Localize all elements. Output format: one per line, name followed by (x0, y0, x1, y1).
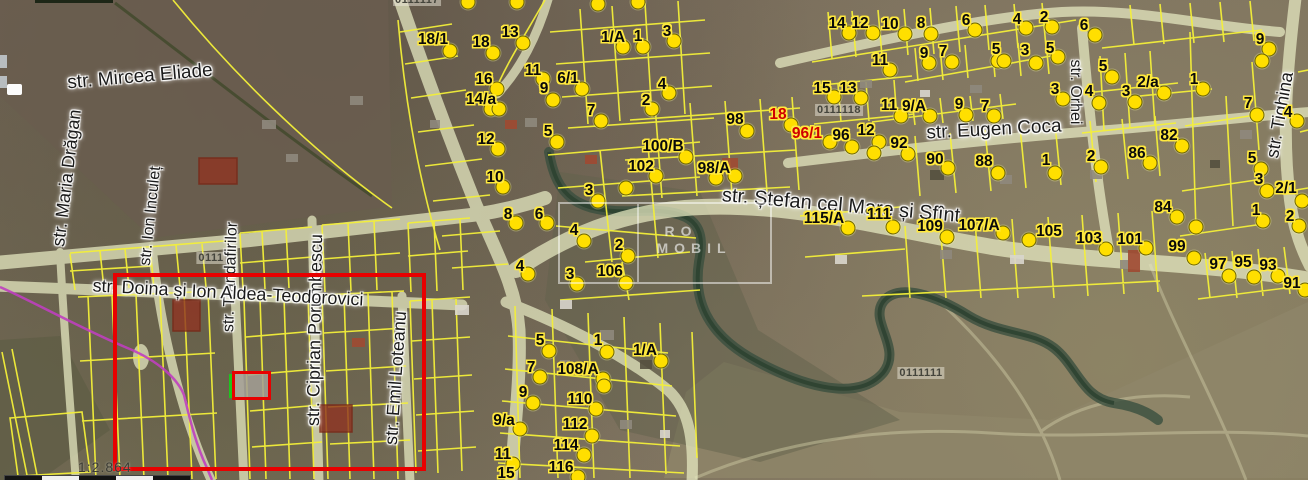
parcel-number: 6/1 (557, 70, 579, 88)
map-canvas[interactable]: str. Mircea Eliadestr. Maria Drăganstr. … (0, 0, 1308, 480)
parcel-number: 10 (881, 16, 898, 34)
parcel-number: 2 (642, 92, 651, 110)
scale-bar-segment (42, 476, 79, 480)
parcel-dot (619, 181, 634, 196)
parcel-number: 5 (544, 123, 553, 141)
parcel-number: 11 (872, 52, 888, 70)
parcel-number: 84 (1154, 199, 1171, 217)
parcel-number: 3 (585, 182, 594, 200)
parcel-number: 5 (992, 41, 1001, 59)
parcel-number: 1 (1252, 202, 1261, 220)
parcel-dot (1094, 160, 1109, 175)
cadastral-code: 0111111 (897, 367, 944, 379)
parcel-number: 4 (1284, 104, 1293, 122)
parcel-number: 4 (658, 76, 667, 94)
parcel-number: 82 (1160, 127, 1177, 145)
parcel-number: 6 (535, 206, 544, 224)
parcel-number: 9 (1256, 31, 1265, 49)
parcel-number: 9 (920, 45, 929, 63)
parcel-number: 92 (890, 135, 907, 153)
parcel-number: 15 (497, 465, 514, 480)
cadastral-code: 0111 (196, 252, 225, 264)
street-label: str. Maria Drăgan (48, 108, 86, 248)
parcel-dot (898, 27, 913, 42)
parcel-number: 9 (955, 96, 964, 114)
parcel-number: 5 (1099, 58, 1108, 76)
parcel-number: 2 (1087, 148, 1096, 166)
parcel-number: 111 (867, 206, 891, 224)
parcel-number: 8 (504, 206, 513, 224)
selected-parcel-green-edge (229, 374, 232, 398)
parcel-number: 7 (1244, 95, 1253, 113)
parcel-dot (1088, 28, 1103, 43)
parcel-number: 88 (975, 153, 992, 171)
parcel-number: 114 (553, 437, 578, 455)
parcel-number: 1 (1042, 152, 1051, 170)
parcel-number: 9/a (493, 412, 515, 430)
parcel-dot (461, 0, 476, 10)
parcel-number: 101 (1117, 231, 1143, 249)
parcel-number: 10 (486, 169, 503, 187)
watermark-text: RO (665, 223, 698, 239)
parcel-dot (597, 379, 612, 394)
parcel-dot (1189, 220, 1204, 235)
parcel-dot (1022, 233, 1037, 248)
parcel-number: 5 (536, 332, 545, 350)
parcel-number: 86 (1128, 145, 1145, 163)
parcel-number: 12 (477, 131, 494, 149)
parcel-dot (1029, 56, 1044, 71)
parcel-number: 3 (1051, 81, 1060, 99)
parcel-dot (1255, 54, 1270, 69)
parcel-number: 2/1 (1275, 180, 1297, 198)
parcel-number: 18 (472, 34, 489, 52)
parcel-number: 116 (548, 459, 573, 477)
parcel-number: 93 (1259, 257, 1276, 275)
parcel-number: 105 (1036, 223, 1062, 241)
parcel-number: 2/a (1137, 74, 1159, 92)
parcel-number: 18/1 (418, 31, 448, 49)
parcel-number: 6 (1080, 17, 1089, 35)
street-label: str. Orhei (1066, 60, 1084, 125)
parcel-number: 102 (628, 158, 654, 176)
parcel-number: 96 (832, 127, 849, 145)
map-scale-label: 1:2.864 (78, 459, 132, 475)
parcel-number: 16 (475, 71, 492, 89)
map-overlay-labels: str. Mircea Eliadestr. Maria Drăganstr. … (0, 0, 1308, 480)
cadastral-code: 0111118 (815, 104, 863, 116)
parcel-number: 3 (663, 23, 672, 41)
parcel-number: 13 (839, 80, 856, 98)
parcel-number: 97 (1209, 256, 1226, 274)
scale-bar-segment (5, 476, 42, 480)
street-label: str. Ion Inculeț (137, 166, 165, 267)
parcel-dot (1170, 210, 1185, 225)
parcel-number: 100/B (642, 138, 683, 156)
parcel-number: 1 (1190, 71, 1199, 89)
parcel-number: 4 (516, 258, 525, 276)
parcel-number: 14 (828, 15, 845, 33)
parcel-dot (1187, 251, 1202, 266)
parcel-number: 12 (857, 122, 874, 140)
parcel-number: 7 (939, 43, 948, 61)
parcel-number: 7 (587, 102, 596, 120)
parcel-number: 9/A (902, 98, 926, 116)
cadastral-code: 0111117 (393, 0, 441, 6)
parcel-number: 11 (495, 446, 511, 464)
parcel-number: 109 (917, 218, 943, 236)
scale-bar-segment (116, 476, 153, 480)
parcel-number: 12 (851, 15, 868, 33)
watermark-divider (637, 204, 639, 282)
parcel-number: 108/A (557, 361, 598, 379)
parcel-number: 13 (501, 24, 518, 42)
parcel-number: 115/A (804, 210, 845, 228)
parcel-dot (591, 0, 606, 12)
parcel-number: 18 (769, 106, 786, 124)
watermark-text: MOBIL (656, 240, 731, 256)
parcel-dot (924, 27, 939, 42)
parcel-number: 7 (981, 98, 990, 116)
parcel-dot (867, 146, 882, 161)
parcel-number: 91 (1283, 275, 1300, 293)
parcel-number: 99 (1168, 238, 1185, 256)
scale-bar-segment (79, 476, 116, 480)
parcel-dot (631, 0, 646, 10)
parcel-number: 4 (1085, 83, 1094, 101)
parcel-number: 98 (726, 111, 743, 129)
parcel-dot (577, 448, 592, 463)
parcel-number: 98/A (698, 160, 731, 178)
street-label: str. Mircea Eliade (66, 60, 213, 95)
parcel-number: 4 (1013, 11, 1022, 29)
parcel-number: 6 (962, 12, 971, 30)
parcel-number: 1/A (633, 342, 657, 360)
parcel-number: 107/A (958, 217, 999, 235)
parcel-number: 7 (527, 359, 536, 377)
map-scale-bar (4, 475, 191, 480)
parcel-number: 1 (594, 332, 603, 350)
parcel-number: 112 (562, 416, 587, 434)
parcel-number: 2 (1040, 9, 1049, 27)
parcel-number: 5 (1046, 40, 1055, 58)
parcel-dot (594, 114, 609, 129)
parcel-number: 110 (567, 391, 592, 409)
parcel-number: 3 (1122, 83, 1131, 101)
parcel-number: 1 (634, 28, 643, 46)
parcel-number: 103 (1076, 230, 1102, 248)
parcel-number: 11 (881, 97, 897, 115)
parcel-number: 96/1 (792, 125, 822, 143)
selected-parcel-rectangle (232, 371, 271, 400)
parcel-number: 8 (917, 15, 926, 33)
parcel-number: 1/A (601, 29, 625, 47)
parcel-dot (510, 0, 525, 10)
parcel-number: 3 (1255, 171, 1264, 189)
parcel-dot (1092, 96, 1107, 111)
parcel-number: 3 (1021, 42, 1030, 60)
parcel-number: 2 (1286, 208, 1295, 226)
parcel-dot (526, 396, 541, 411)
parcel-number: 15 (813, 80, 830, 98)
parcel-number: 95 (1234, 254, 1251, 272)
parcel-dot (991, 166, 1006, 181)
parcel-number: 9 (519, 384, 528, 402)
parcel-number: 14/a (466, 91, 496, 109)
parcel-number: 9 (540, 80, 549, 98)
parcel-number: 11 (525, 62, 541, 80)
parcel-number: 5 (1248, 150, 1257, 168)
parcel-number: 90 (926, 151, 943, 169)
scale-bar-segment (153, 476, 190, 480)
